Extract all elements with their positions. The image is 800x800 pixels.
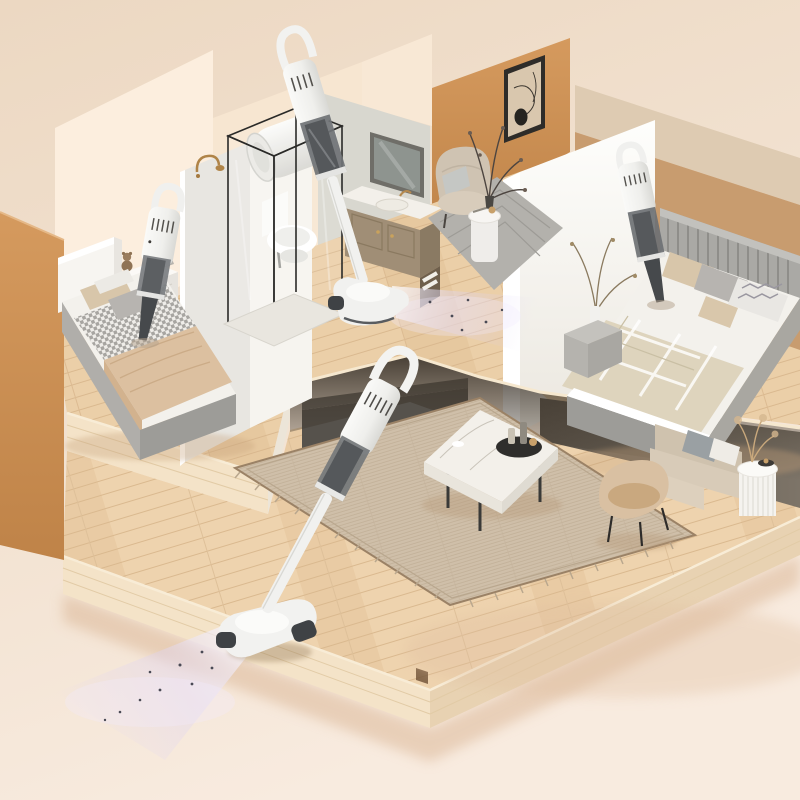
art-black-blob [515, 109, 528, 126]
left-outer-wall-orange [0, 212, 64, 560]
vanity-sink [376, 199, 408, 211]
chair-seat [608, 483, 660, 509]
beam-floor-glow [389, 296, 521, 336]
tray-cup [529, 438, 537, 446]
scene-canvas: Isometric cutaway 3D room scene: two bed… [0, 0, 800, 800]
wood-sphere-decor [489, 207, 496, 214]
beam-floor-glow [65, 677, 235, 727]
white-cup [452, 441, 464, 447]
nook-pedestal-table [469, 207, 501, 263]
tray-bottle [508, 428, 515, 444]
wall-art-frame [504, 55, 545, 143]
head-bumper-left [216, 632, 236, 648]
isometric-room-illustration: Isometric cutaway 3D room scene: two bed… [0, 0, 800, 800]
tray-bottle-2 [520, 422, 527, 444]
nozzle-contact-shadow [131, 338, 159, 348]
head-bumper-left [328, 296, 344, 310]
nozzle-contact-shadow [647, 300, 675, 310]
